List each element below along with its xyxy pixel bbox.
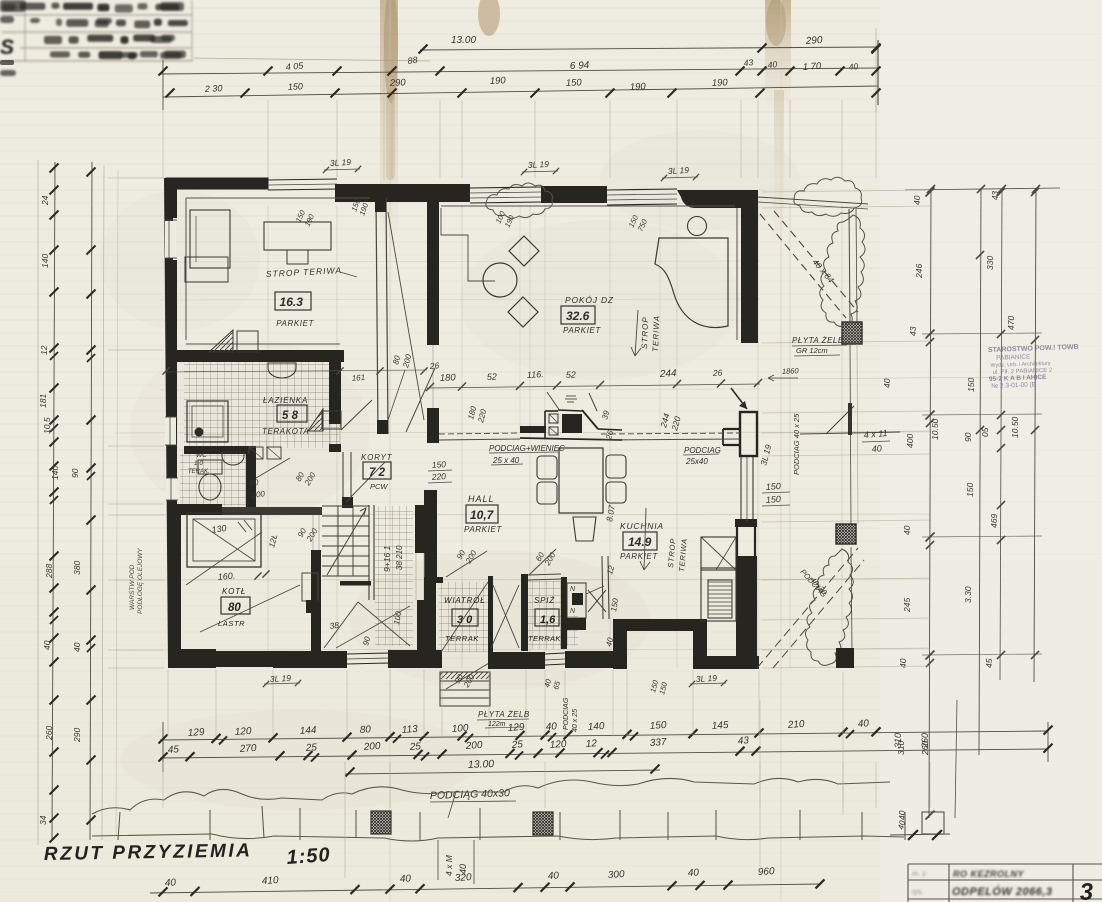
svg-text:88: 88: [407, 55, 418, 66]
svg-text:122m: 122m: [488, 721, 506, 728]
svg-text:140: 140: [50, 466, 60, 480]
svg-text:116.: 116.: [527, 369, 544, 380]
svg-text:32.6: 32.6: [566, 309, 590, 323]
svg-text:rys.: rys.: [912, 889, 923, 896]
svg-text:4 05: 4 05: [285, 60, 304, 72]
svg-text:3.30: 3.30: [963, 586, 973, 603]
svg-text:PABIANICE: PABIANICE: [996, 354, 1031, 362]
svg-text:38 210: 38 210: [395, 545, 404, 570]
svg-text:3L 19: 3L 19: [696, 673, 718, 684]
svg-text:180: 180: [440, 372, 457, 384]
svg-text:469: 469: [989, 514, 999, 528]
svg-text:129: 129: [187, 727, 205, 739]
svg-text:40: 40: [400, 873, 412, 885]
svg-text:13.00: 13.00: [451, 35, 476, 46]
svg-text:129: 129: [507, 722, 525, 734]
svg-text:KOTŁ: KOTŁ: [222, 587, 246, 596]
svg-text:150: 150: [566, 77, 583, 89]
svg-text:5 8: 5 8: [282, 410, 299, 422]
svg-text:m. 1:: m. 1:: [912, 871, 928, 878]
svg-text:GR 12cm: GR 12cm: [796, 346, 828, 355]
svg-text:PARKIET: PARKIET: [276, 319, 314, 328]
svg-text:PODCIAG: PODCIAG: [684, 446, 721, 455]
svg-text:40: 40: [857, 718, 869, 730]
svg-text:45: 45: [984, 658, 994, 668]
svg-text:100: 100: [451, 723, 469, 735]
svg-text:40: 40: [72, 642, 82, 652]
svg-text:244: 244: [659, 368, 678, 380]
svg-text:12: 12: [39, 345, 49, 355]
svg-text:140: 140: [587, 721, 605, 733]
svg-text:150: 150: [431, 459, 446, 470]
svg-text:470: 470: [1006, 316, 1016, 330]
svg-text:14.9: 14.9: [628, 535, 652, 549]
svg-text:TERAKOTA: TERAKOTA: [262, 427, 309, 436]
svg-text:4 x 11: 4 x 11: [863, 428, 888, 440]
svg-text:337: 337: [649, 737, 667, 749]
svg-text:24: 24: [40, 195, 50, 206]
svg-text:145: 145: [711, 720, 729, 732]
svg-text:150: 150: [765, 494, 781, 505]
svg-text:43: 43: [743, 57, 754, 68]
svg-text:KUCHNIA: KUCHNIA: [620, 521, 664, 531]
svg-text:1860: 1860: [782, 366, 800, 376]
svg-text:140: 140: [40, 254, 50, 268]
svg-text:RO KEZROLNY: RO KEZROLNY: [953, 869, 1024, 879]
svg-text:WC: WC: [196, 452, 207, 459]
svg-text:161: 161: [351, 373, 365, 383]
svg-text:150: 150: [765, 481, 781, 492]
svg-text:4 x M: 4 x M: [444, 854, 454, 876]
svg-text:144: 144: [299, 725, 317, 737]
svg-text:TERAK.: TERAK.: [188, 469, 210, 475]
svg-text:40: 40: [902, 525, 912, 535]
svg-text:12: 12: [585, 738, 597, 750]
svg-text:3L 19: 3L 19: [270, 673, 292, 684]
svg-text:120: 120: [549, 739, 567, 751]
svg-text:25 x 40: 25 x 40: [492, 456, 520, 465]
svg-text:WARSTW POD: WARSTW POD: [129, 564, 136, 610]
svg-text:SPIŻ: SPIŻ: [534, 596, 555, 605]
svg-text:25x40: 25x40: [685, 457, 708, 466]
svg-text:KORYT: KORYT: [361, 453, 393, 462]
svg-text:STROP: STROP: [640, 316, 650, 349]
svg-text:380: 380: [72, 561, 82, 575]
svg-text:43: 43: [991, 191, 1000, 200]
svg-text:40 x 25: 40 x 25: [572, 709, 579, 732]
svg-text:90: 90: [70, 468, 80, 478]
svg-text:PARKIET: PARKIET: [563, 326, 601, 335]
svg-text:3L 19: 3L 19: [528, 159, 550, 170]
svg-text:40: 40: [848, 61, 859, 72]
svg-text:90: 90: [963, 432, 973, 442]
svg-text:7 2: 7 2: [369, 467, 386, 479]
svg-text:TERRAK: TERRAK: [445, 634, 479, 643]
svg-text:25: 25: [510, 739, 523, 751]
svg-text:150: 150: [966, 378, 976, 392]
svg-text:190: 190: [630, 81, 647, 93]
svg-text:200: 200: [464, 740, 483, 752]
svg-text:PŁYTA ŻELB: PŁYTA ŻELB: [478, 710, 530, 719]
svg-text:TERIWA: TERIWA: [651, 315, 661, 352]
svg-text:3L 19: 3L 19: [330, 157, 352, 168]
svg-text:40: 40: [458, 864, 468, 874]
svg-text:LASTR: LASTR: [218, 619, 245, 628]
svg-text:POKÓJ DZ: POKÓJ DZ: [565, 295, 614, 305]
svg-text:9+16 1: 9+16 1: [382, 545, 392, 572]
svg-text:40: 40: [165, 877, 177, 889]
svg-text:52: 52: [566, 369, 577, 380]
svg-text:HALL: HALL: [468, 494, 495, 504]
svg-text:25: 25: [304, 742, 317, 754]
svg-text:1,0: 1,0: [194, 460, 203, 467]
svg-text:10.5: 10.5: [42, 417, 52, 434]
svg-text:40: 40: [871, 443, 882, 454]
svg-text:34: 34: [38, 815, 48, 825]
svg-text:26: 26: [428, 360, 440, 371]
svg-text:38: 38: [329, 620, 340, 631]
svg-text:S: S: [0, 36, 14, 59]
svg-text:10.50: 10.50: [1010, 416, 1020, 438]
svg-text:PARKIET: PARKIET: [464, 525, 502, 534]
svg-text:246: 246: [914, 264, 924, 279]
svg-text:60: 60: [249, 478, 260, 488]
svg-text:PODCIAG+WIENIEC: PODCIAG+WIENIEC: [489, 444, 565, 453]
svg-text:PODCIAG: PODCIAG: [563, 697, 570, 730]
svg-text:PODCIAG 40 x 25: PODCIAG 40 x 25: [792, 413, 801, 475]
svg-text:40: 40: [42, 640, 52, 650]
svg-text:ŁAZIENKA: ŁAZIENKA: [263, 396, 308, 405]
svg-text:40: 40: [882, 378, 892, 388]
svg-text:181: 181: [38, 394, 48, 408]
svg-text:150: 150: [649, 720, 667, 732]
svg-text:220: 220: [430, 471, 446, 482]
svg-text:210: 210: [786, 719, 805, 731]
svg-text:290: 290: [389, 77, 407, 89]
svg-text:PARKIET: PARKIET: [620, 552, 658, 561]
svg-text:260: 260: [44, 726, 54, 741]
svg-text:288: 288: [44, 564, 54, 579]
svg-text:400: 400: [905, 434, 915, 448]
svg-text:290: 290: [804, 35, 823, 47]
svg-text:330: 330: [985, 256, 995, 270]
svg-text:6 94: 6 94: [570, 60, 590, 72]
svg-text:113: 113: [401, 724, 418, 736]
svg-text:310: 310: [893, 733, 903, 748]
svg-text:120: 120: [234, 726, 252, 738]
svg-text:13.00: 13.00: [468, 758, 495, 771]
svg-text:245: 245: [902, 598, 912, 613]
svg-text:290: 290: [72, 728, 82, 743]
svg-text:26: 26: [712, 368, 723, 379]
svg-text:ODPELÓW 2066,3: ODPELÓW 2066,3: [952, 885, 1053, 898]
svg-text:TERRAK: TERRAK: [528, 634, 561, 643]
svg-text:05: 05: [980, 427, 990, 437]
svg-text:43: 43: [908, 326, 918, 336]
svg-text:160.: 160.: [217, 571, 235, 582]
svg-text:45: 45: [167, 744, 179, 756]
svg-text:40: 40: [548, 870, 560, 882]
svg-text:10,7: 10,7: [470, 508, 495, 522]
svg-text:3 0: 3 0: [457, 614, 473, 626]
svg-text:80: 80: [228, 602, 241, 614]
svg-text:40: 40: [545, 721, 557, 733]
svg-text:1:50: 1:50: [286, 844, 331, 869]
svg-text:3: 3: [1079, 879, 1094, 902]
svg-text:40: 40: [688, 867, 700, 879]
svg-text:PODŁOGĘ OLEJOWY: PODŁOGĘ OLEJOWY: [137, 548, 144, 614]
svg-text:RZUT PRZYZIEMIA: RZUT PRZYZIEMIA: [44, 840, 253, 865]
svg-text:150: 150: [965, 483, 975, 497]
svg-text:260: 260: [920, 733, 930, 749]
svg-text:150: 150: [288, 81, 304, 92]
svg-text:190: 190: [712, 77, 729, 89]
svg-text:200: 200: [362, 741, 381, 753]
svg-text:2 30: 2 30: [204, 83, 223, 94]
svg-text:16.3: 16.3: [280, 295, 304, 309]
svg-text:40: 40: [767, 59, 778, 70]
svg-text:270: 270: [238, 743, 257, 755]
svg-text:40: 40: [912, 195, 922, 205]
svg-text:WIATROŁ: WIATROŁ: [444, 596, 485, 605]
svg-text:80: 80: [359, 724, 371, 736]
svg-text:300: 300: [608, 869, 626, 881]
svg-text:43: 43: [737, 735, 749, 747]
svg-text:190: 190: [490, 75, 507, 87]
svg-text:PŁYTA ŻELB: PŁYTA ŻELB: [792, 336, 844, 345]
svg-text:25: 25: [408, 741, 421, 753]
svg-text:PCW: PCW: [370, 482, 388, 491]
svg-text:410: 410: [262, 875, 280, 887]
svg-text:1,6: 1,6: [540, 614, 556, 626]
svg-text:3L 19: 3L 19: [668, 165, 690, 176]
svg-text:130: 130: [211, 523, 227, 535]
svg-text:1 70: 1 70: [802, 61, 822, 73]
svg-text:52: 52: [487, 371, 498, 382]
